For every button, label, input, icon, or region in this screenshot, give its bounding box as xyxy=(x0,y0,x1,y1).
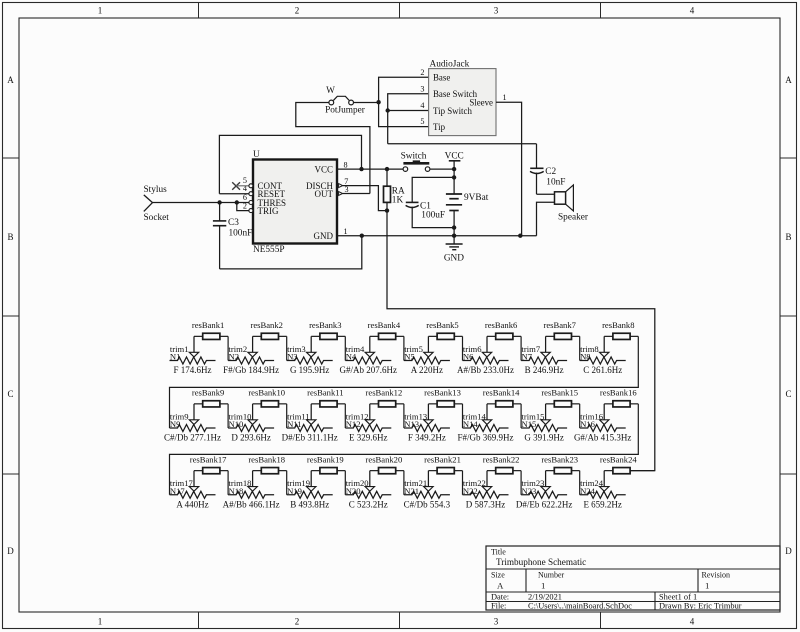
svg-text:Title: Title xyxy=(491,548,506,557)
svg-text:Date:: Date: xyxy=(491,593,509,602)
svg-text:2/19/2021: 2/19/2021 xyxy=(528,593,562,602)
svg-text:resBank21: resBank21 xyxy=(424,455,461,465)
svg-text:resBank1: resBank1 xyxy=(192,320,224,330)
svg-text:resBank24: resBank24 xyxy=(600,455,637,465)
svg-text:Socket: Socket xyxy=(144,213,170,223)
svg-text:U: U xyxy=(253,150,260,160)
svg-text:G#/Ab 207.6Hz: G#/Ab 207.6Hz xyxy=(340,365,398,375)
svg-text:N7: N7 xyxy=(522,352,533,362)
svg-text:N24: N24 xyxy=(580,486,596,496)
svg-text:N10: N10 xyxy=(229,419,244,429)
svg-text:resBank9: resBank9 xyxy=(192,388,224,398)
svg-text:TRIG: TRIG xyxy=(258,206,279,216)
svg-text:resBank18: resBank18 xyxy=(248,455,285,465)
svg-text:resBank13: resBank13 xyxy=(424,388,461,398)
svg-text:A 440Hz: A 440Hz xyxy=(176,499,208,509)
svg-text:3: 3 xyxy=(494,617,499,627)
svg-text:1: 1 xyxy=(502,93,506,102)
svg-text:N17: N17 xyxy=(170,486,186,496)
svg-text:Number: Number xyxy=(538,571,565,580)
svg-text:Sleeve: Sleeve xyxy=(469,98,493,108)
svg-text:4: 4 xyxy=(690,6,695,16)
svg-text:C#/Db 554.3: C#/Db 554.3 xyxy=(404,499,451,509)
svg-text:8: 8 xyxy=(344,160,348,169)
svg-text:Base: Base xyxy=(433,73,450,83)
svg-text:N21: N21 xyxy=(404,486,419,496)
svg-text:B 246.9Hz: B 246.9Hz xyxy=(525,365,564,375)
svg-text:resBank8: resBank8 xyxy=(602,320,634,330)
svg-text:D 293.6Hz: D 293.6Hz xyxy=(231,433,271,443)
svg-text:1: 1 xyxy=(541,581,545,591)
svg-text:Switch: Switch xyxy=(401,151,427,161)
svg-text:Size: Size xyxy=(491,571,505,580)
svg-text:N19: N19 xyxy=(287,486,302,496)
svg-text:C 523.2Hz: C 523.2Hz xyxy=(349,499,388,509)
svg-text:5: 5 xyxy=(420,117,424,126)
svg-text:VCC: VCC xyxy=(314,165,333,175)
svg-text:N2: N2 xyxy=(229,352,240,362)
svg-text:N5: N5 xyxy=(404,352,415,362)
svg-text:2: 2 xyxy=(420,68,424,77)
svg-text:Drawn By: Eric Trimbur: Drawn By: Eric Trimbur xyxy=(659,602,742,611)
svg-text:resBank6: resBank6 xyxy=(485,320,518,330)
svg-text:resBank7: resBank7 xyxy=(543,320,576,330)
svg-text:C 261.6Hz: C 261.6Hz xyxy=(583,365,622,375)
svg-text:resBank2: resBank2 xyxy=(250,320,282,330)
svg-text:resBank10: resBank10 xyxy=(248,388,285,398)
svg-text:A: A xyxy=(7,75,14,85)
svg-text:N22: N22 xyxy=(463,486,478,496)
svg-text:3: 3 xyxy=(345,185,349,194)
svg-text:resBank19: resBank19 xyxy=(307,455,344,465)
svg-text:G 195.9Hz: G 195.9Hz xyxy=(290,365,330,375)
svg-text:Tip Switch: Tip Switch xyxy=(433,106,472,116)
svg-text:D#/Eb 311.1Hz: D#/Eb 311.1Hz xyxy=(282,433,338,443)
svg-text:GND: GND xyxy=(314,231,334,241)
svg-text:100uF: 100uF xyxy=(421,211,445,221)
svg-text:B 493.8Hz: B 493.8Hz xyxy=(290,499,329,509)
svg-text:OUT: OUT xyxy=(315,189,334,199)
svg-text:D: D xyxy=(7,546,14,556)
svg-text:W: W xyxy=(326,86,335,96)
svg-text:F#/Gb 184.9Hz: F#/Gb 184.9Hz xyxy=(223,365,279,375)
svg-text:4: 4 xyxy=(690,617,695,627)
svg-text:N8: N8 xyxy=(580,352,591,362)
svg-text:2: 2 xyxy=(243,201,247,210)
svg-text:resBank23: resBank23 xyxy=(541,455,578,465)
svg-text:2: 2 xyxy=(295,6,300,16)
svg-text:resBank12: resBank12 xyxy=(366,388,403,398)
svg-text:resBank5: resBank5 xyxy=(426,320,458,330)
svg-text:VCC: VCC xyxy=(445,151,464,161)
svg-text:N14: N14 xyxy=(463,419,479,429)
svg-text:1K: 1K xyxy=(392,196,404,206)
svg-text:C: C xyxy=(7,389,13,399)
svg-text:resBank20: resBank20 xyxy=(366,455,403,465)
svg-text:C3: C3 xyxy=(228,218,239,228)
svg-text:D 587.3Hz: D 587.3Hz xyxy=(466,499,506,509)
svg-text:resBank15: resBank15 xyxy=(541,388,578,398)
svg-text:B: B xyxy=(7,232,13,242)
svg-text:3: 3 xyxy=(494,6,499,16)
svg-text:N11: N11 xyxy=(287,419,301,429)
svg-text:3: 3 xyxy=(420,84,424,93)
svg-text:resBank22: resBank22 xyxy=(483,455,520,465)
svg-text:A#/Bb 233.0Hz: A#/Bb 233.0Hz xyxy=(457,365,514,375)
svg-text:N20: N20 xyxy=(346,486,361,496)
svg-text:N23: N23 xyxy=(522,486,537,496)
svg-text:N9: N9 xyxy=(170,419,181,429)
svg-text:N18: N18 xyxy=(229,486,244,496)
svg-text:N6: N6 xyxy=(463,352,474,362)
svg-text:E 329.6Hz: E 329.6Hz xyxy=(349,433,388,443)
svg-text:2: 2 xyxy=(295,617,300,627)
svg-text:File:: File: xyxy=(491,602,506,611)
svg-text:1: 1 xyxy=(98,6,103,16)
svg-text:N4: N4 xyxy=(346,352,357,362)
svg-text:N3: N3 xyxy=(287,352,298,362)
svg-text:resBank11: resBank11 xyxy=(307,388,343,398)
svg-text:resBank17: resBank17 xyxy=(190,455,227,465)
svg-text:B: B xyxy=(785,232,791,242)
svg-text:1: 1 xyxy=(344,227,348,236)
svg-text:1: 1 xyxy=(98,617,103,627)
svg-text:E 659.2Hz: E 659.2Hz xyxy=(583,499,622,509)
svg-text:C2: C2 xyxy=(545,167,556,177)
svg-text:Trimbuphone Schematic: Trimbuphone Schematic xyxy=(496,557,586,567)
svg-text:D: D xyxy=(785,546,792,556)
svg-text:resBank14: resBank14 xyxy=(483,388,520,398)
svg-text:D#/Eb 622.2Hz: D#/Eb 622.2Hz xyxy=(516,499,573,509)
svg-text:A: A xyxy=(785,75,792,85)
svg-text:F 349.2Hz: F 349.2Hz xyxy=(408,433,446,443)
svg-text:4: 4 xyxy=(420,101,424,110)
svg-text:A 220Hz: A 220Hz xyxy=(411,365,443,375)
svg-text:PotJumper: PotJumper xyxy=(325,105,366,115)
svg-text:Stylus: Stylus xyxy=(144,185,168,195)
svg-text:Tip: Tip xyxy=(433,122,446,132)
svg-text:F 174.6Hz: F 174.6Hz xyxy=(174,365,212,375)
svg-text:NE555P: NE555P xyxy=(253,245,285,255)
svg-text:Sheet1 of 1: Sheet1 of 1 xyxy=(659,593,697,602)
svg-text:AudioJack: AudioJack xyxy=(430,59,470,69)
svg-text:100nF: 100nF xyxy=(229,229,253,239)
svg-text:N1: N1 xyxy=(170,352,181,362)
svg-text:resBank3: resBank3 xyxy=(309,320,341,330)
svg-text:A: A xyxy=(497,581,504,591)
svg-text:resBank4: resBank4 xyxy=(368,320,401,330)
svg-text:N13: N13 xyxy=(404,419,419,429)
svg-text:G#/Ab 415.3Hz: G#/Ab 415.3Hz xyxy=(574,433,632,443)
svg-text:A#/Bb 466.1Hz: A#/Bb 466.1Hz xyxy=(223,499,280,509)
svg-text:1: 1 xyxy=(705,581,709,591)
svg-text:F#/Gb 369.9Hz: F#/Gb 369.9Hz xyxy=(458,433,514,443)
svg-text:N16: N16 xyxy=(580,419,596,429)
svg-text:10nF: 10nF xyxy=(546,177,565,187)
svg-text:Speaker: Speaker xyxy=(558,212,589,222)
svg-text:GND: GND xyxy=(444,253,464,263)
svg-text:G 391.9Hz: G 391.9Hz xyxy=(524,433,564,443)
svg-text:C: C xyxy=(785,389,791,399)
svg-text:Revision: Revision xyxy=(702,571,730,580)
svg-text:C:\Users\..\mainBoard.SchDoc: C:\Users\..\mainBoard.SchDoc xyxy=(528,602,632,611)
svg-text:N12: N12 xyxy=(346,419,361,429)
svg-text:9VBat: 9VBat xyxy=(464,193,489,203)
svg-text:C#/Db 277.1Hz: C#/Db 277.1Hz xyxy=(164,433,221,443)
svg-text:resBank16: resBank16 xyxy=(600,388,637,398)
svg-text:N15: N15 xyxy=(522,419,537,429)
